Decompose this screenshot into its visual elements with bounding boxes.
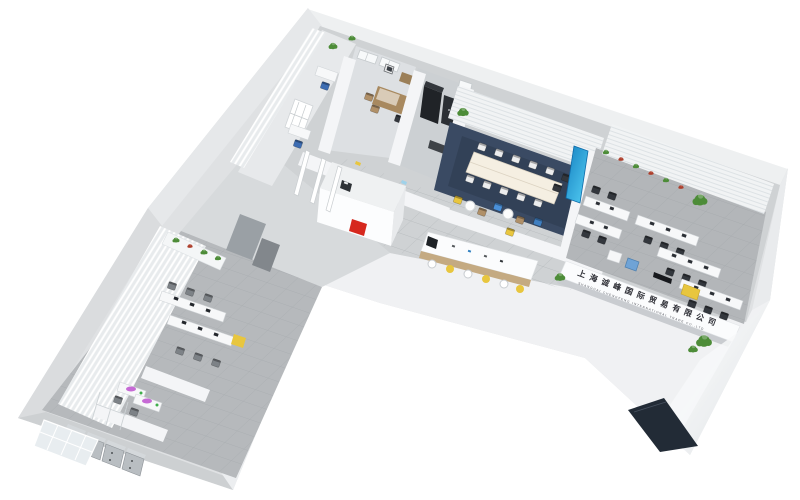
green-light [156, 404, 159, 407]
office-3d-floorplan: 上海诚峰国际贸易有限公司 SHANGHAI CHENGFENG INTERNAT… [0, 0, 800, 500]
drawer-handle [109, 459, 111, 461]
floorplan-canvas: 上海诚峰国际贸易有限公司 SHANGHAI CHENGFENG INTERNAT… [0, 0, 800, 500]
round-table [465, 201, 475, 211]
drawer-handle [111, 452, 113, 454]
bar-stool-yellow [482, 275, 490, 283]
fridge-handle [448, 109, 450, 111]
bar-stool [428, 260, 436, 268]
bar-stool [500, 280, 508, 288]
round-table [503, 209, 513, 219]
purple-screen [126, 387, 136, 392]
green-light [140, 392, 143, 395]
purple-screen [142, 399, 152, 404]
bar-stool-yellow [446, 265, 454, 273]
bar-stool [464, 270, 472, 278]
drawer-handle [129, 467, 131, 469]
bar-stool-yellow [516, 285, 524, 293]
drawer-handle [131, 460, 133, 462]
